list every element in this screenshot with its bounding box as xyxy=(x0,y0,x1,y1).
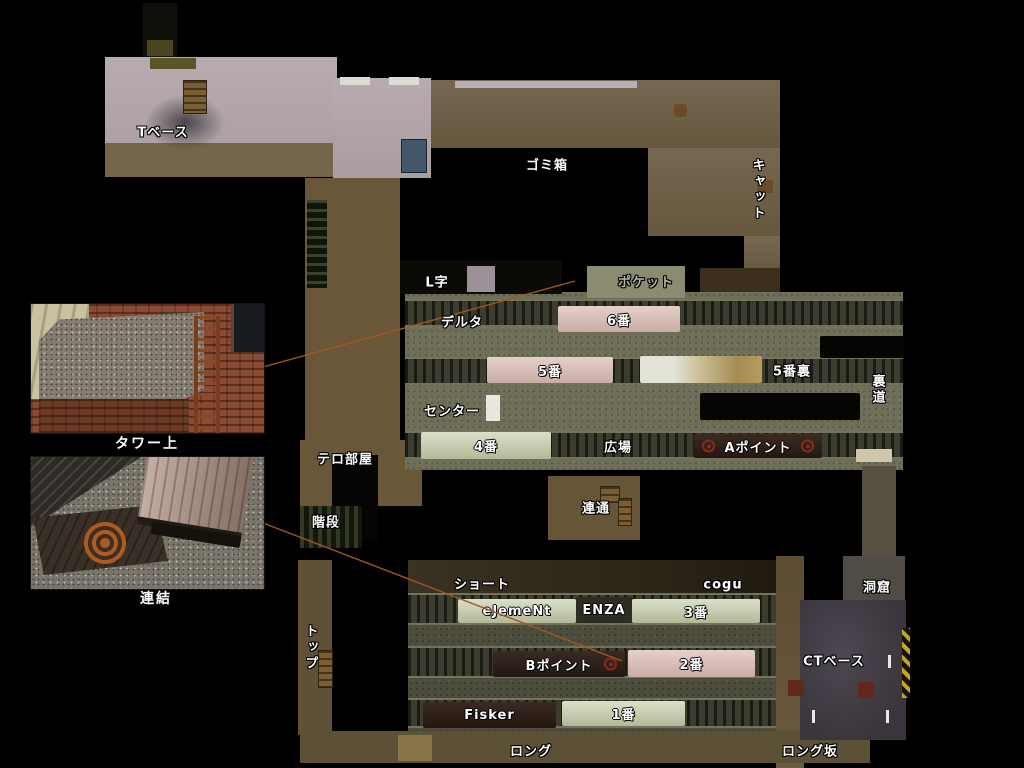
tero-ladder xyxy=(307,200,327,288)
train-4: 4番 xyxy=(421,432,551,459)
tower-gravel-roof xyxy=(39,312,204,407)
top-corridor-crates xyxy=(318,650,333,688)
vent-block-2 xyxy=(389,77,419,85)
train-5: 5番 xyxy=(487,357,613,383)
label-ct-base: CTベース xyxy=(803,651,865,670)
train-6: 6番 xyxy=(558,306,680,332)
inset-caption-tower: タワー上 xyxy=(115,433,179,453)
label-pocket: ポケット xyxy=(618,272,674,291)
corridor-barrel xyxy=(674,104,687,117)
train-6-label: 6番 xyxy=(607,310,631,329)
label-l-ji: L字 xyxy=(425,272,448,291)
label-cat: キャット xyxy=(748,158,767,222)
ct-crate-2 xyxy=(858,682,874,698)
t-base-spawn-strip xyxy=(150,58,196,69)
label-tero-beya: テロ部屋 xyxy=(317,449,373,468)
ct-door-tick-1 xyxy=(888,655,891,668)
ct-door-tick-2 xyxy=(812,710,815,723)
label-dokutsu: 洞窟 xyxy=(863,577,891,596)
label-hiroba: 広場 xyxy=(604,437,632,456)
label-top: トップ xyxy=(301,624,320,672)
label-delta: デルタ xyxy=(441,312,483,331)
train-1-label: 1番 xyxy=(611,704,635,723)
truck-cab xyxy=(147,40,173,56)
cat-doorway xyxy=(700,268,780,294)
train-element-label: eJemeNt xyxy=(483,604,552,619)
ct-door-tick-3 xyxy=(886,710,889,723)
vent-block-1 xyxy=(340,77,370,85)
train-a-point: Aポイント xyxy=(694,434,822,458)
train-a-point-label: Aポイント xyxy=(724,437,791,456)
label-center: センター xyxy=(424,401,480,420)
ct-base-room xyxy=(800,600,906,740)
long-wedge xyxy=(398,735,432,761)
center-crate xyxy=(486,395,500,421)
train-b-point: Bポイント xyxy=(493,651,625,677)
inset-photo-tower xyxy=(30,303,265,434)
train-5-label: 5番 xyxy=(538,361,562,380)
train-fisker: Fisker xyxy=(423,702,556,728)
train-2-label: 2番 xyxy=(679,654,703,673)
label-cogu: cogu xyxy=(703,578,742,593)
corridor-top-light-edge xyxy=(455,81,637,88)
train-black-2 xyxy=(820,336,904,358)
t-base-crates xyxy=(183,80,207,114)
ct-crate-1 xyxy=(788,680,804,696)
label-go-ban-ura: 5番裏 xyxy=(773,361,811,380)
train-element: eJemeNt xyxy=(458,599,576,623)
label-long-zaka: ロング坂 xyxy=(782,741,838,760)
label-short: ショート xyxy=(454,574,510,593)
train-3: 3番 xyxy=(632,599,760,623)
rentsu-crate-2 xyxy=(618,498,632,526)
train-2: 2番 xyxy=(628,650,755,677)
train-3-label: 3番 xyxy=(684,602,708,621)
train-a-point-target-left xyxy=(702,440,715,453)
train-enza-label: ENZA xyxy=(582,603,625,618)
map-overview: 6番5番4番AポイントeJemeNtENZA3番Bポイント2番Fisker1番 … xyxy=(0,0,1024,768)
tower-front-face xyxy=(39,399,189,433)
train-fisker-label: Fisker xyxy=(464,708,515,723)
train-4-label: 4番 xyxy=(474,436,498,455)
inset-caption-coupling: 連結 xyxy=(140,588,172,608)
label-gomibako: ゴミ箱 xyxy=(526,155,568,174)
label-long: ロング xyxy=(510,741,552,760)
l-ji-box xyxy=(467,266,495,292)
train-enza: ENZA xyxy=(576,597,632,623)
train-a-point-target-right xyxy=(801,440,814,453)
light-platform xyxy=(856,449,892,462)
hazard-strip xyxy=(902,628,910,698)
blue-door xyxy=(401,139,427,173)
tower-ladder xyxy=(194,316,220,433)
label-rentsu: 連通 xyxy=(582,498,610,517)
label-kaidan: 階段 xyxy=(312,512,340,531)
tower-window xyxy=(231,304,264,352)
train-b-point-target-right xyxy=(604,658,617,671)
train-1: 1番 xyxy=(562,701,685,726)
label-uramichi: 裏道 xyxy=(868,374,887,406)
inset-photo-coupling xyxy=(30,456,265,590)
label-t-base: Tベース xyxy=(137,122,188,141)
train-black-1 xyxy=(700,393,860,420)
train-5-ura xyxy=(640,356,762,383)
train-b-point-label: Bポイント xyxy=(526,655,593,674)
coupling-bullseye xyxy=(79,519,131,567)
